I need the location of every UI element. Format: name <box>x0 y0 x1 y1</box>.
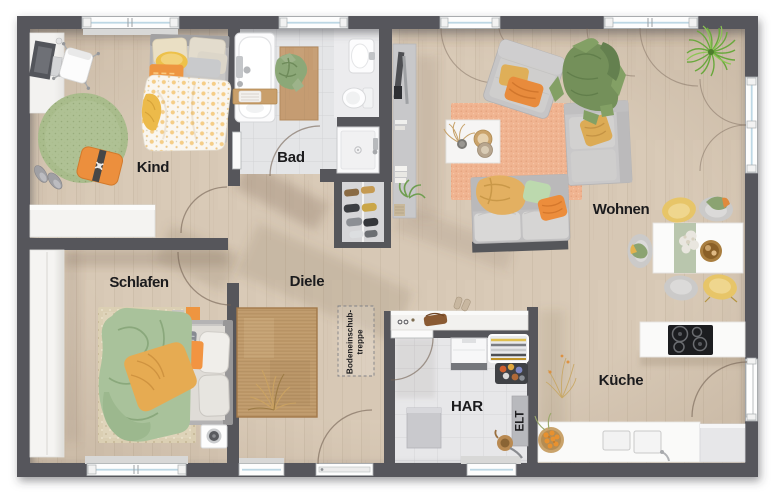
svg-text:Bodeneinschub-: Bodeneinschub- <box>346 310 355 374</box>
svg-text:Wohnen: Wohnen <box>593 201 650 218</box>
svg-text:treppe: treppe <box>356 329 365 354</box>
svg-text:Schlafen: Schlafen <box>109 274 169 291</box>
svg-text:Küche: Küche <box>599 372 644 389</box>
svg-text:HAR: HAR <box>451 398 483 415</box>
svg-text:Kind: Kind <box>137 159 170 176</box>
svg-text:Diele: Diele <box>290 273 325 290</box>
svg-text:Bad: Bad <box>277 149 305 166</box>
svg-text:ELT: ELT <box>515 411 527 432</box>
